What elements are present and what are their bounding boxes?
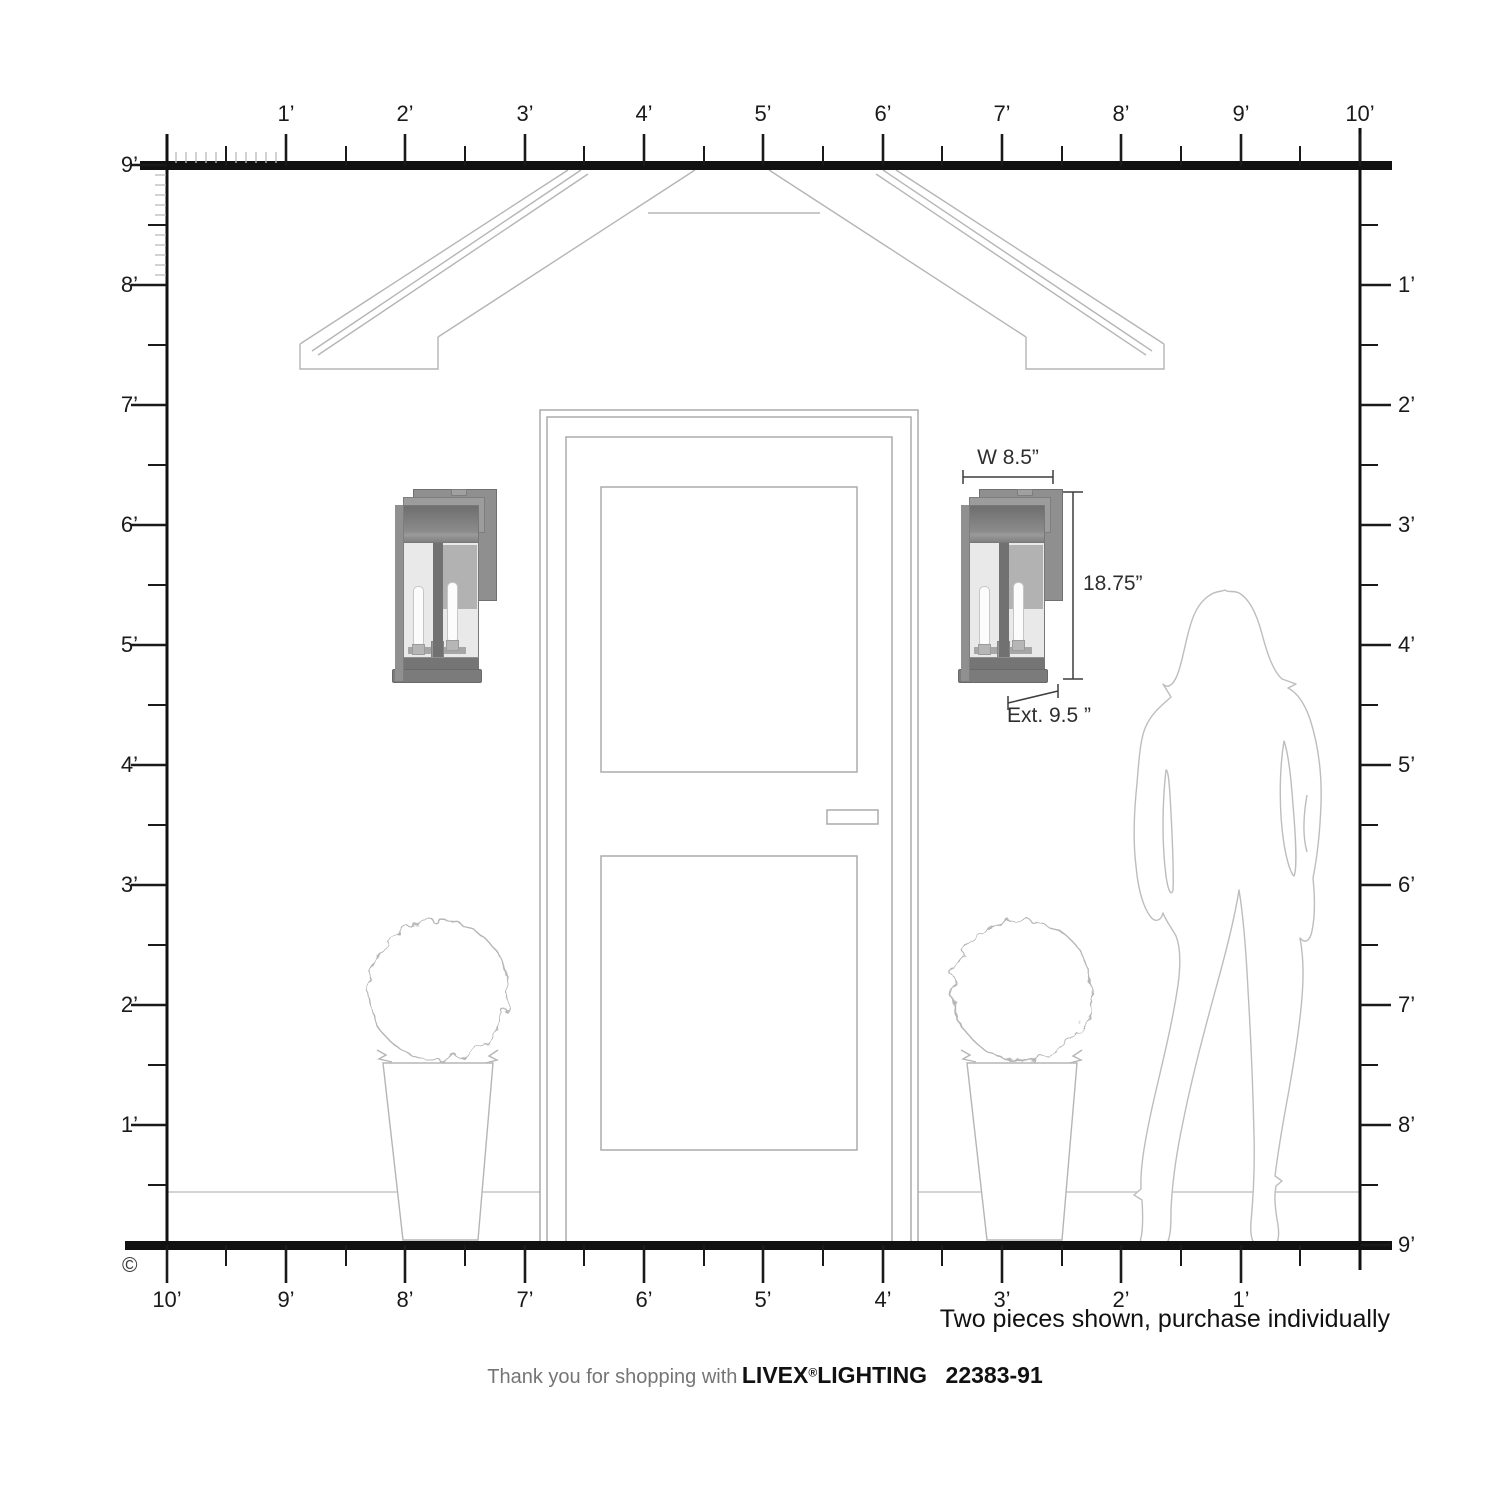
lantern-top-band: [961, 505, 1045, 543]
footer-brand-line: Thank you for shopping with LIVEX®LIGHTI…: [487, 1362, 1042, 1389]
ruler-label: 8’: [70, 273, 138, 297]
ruler-label: 2’: [396, 102, 413, 126]
lantern-glass-shadow: [1005, 545, 1043, 609]
ruler-label: 1’: [1398, 273, 1415, 297]
top-ruler-bar: [140, 161, 1392, 170]
planter: [383, 1063, 493, 1240]
planter: [967, 1063, 1077, 1240]
ruler-label: 4’: [874, 1288, 891, 1312]
woman-silhouette: [1134, 590, 1321, 1245]
ruler-label: 9’: [1398, 1233, 1415, 1257]
bottom-ruler-bar: [125, 1241, 1392, 1250]
shrub: [952, 920, 1092, 1060]
brand-word: LIGHTING: [817, 1362, 927, 1388]
ruler-label: 7’: [993, 102, 1010, 126]
ruler-label: 3’: [70, 873, 138, 897]
ruler-label: 1’: [70, 1113, 138, 1137]
ruler-label: 4’: [1398, 633, 1415, 657]
porch-roof: [300, 170, 1164, 369]
lantern-mullion: [999, 539, 1009, 661]
ruler-label: 8’: [1112, 102, 1129, 126]
ruler-label: 6’: [874, 102, 891, 126]
lantern-socket: [446, 640, 459, 651]
size-guide-diagram: 1’ 2’ 3’ 4’ 5’ 6’ 7’ 8’ 9’ 10’ 9’ 8’ 7’ …: [0, 0, 1500, 1500]
lantern-socket: [978, 644, 991, 655]
brand-name: LIVEX: [742, 1362, 808, 1388]
purchase-note: Two pieces shown, purchase individually: [940, 1305, 1390, 1334]
height-dimension-label: 18.75”: [1083, 573, 1143, 595]
ruler-label: 7’: [516, 1288, 533, 1312]
shrub: [368, 920, 508, 1060]
front-door: [540, 410, 918, 1242]
lantern-mount-tab: [1017, 489, 1033, 496]
ruler-label: 2’: [1398, 393, 1415, 417]
registered-mark: ®: [808, 1366, 817, 1380]
lantern-frame-edge: [961, 505, 970, 681]
wall-lantern-right: [961, 489, 1063, 683]
ruler-label: 8’: [396, 1288, 413, 1312]
ruler-label: 7’: [70, 393, 138, 417]
ruler-label: 5’: [1398, 753, 1415, 777]
lantern-skirt: [392, 669, 482, 683]
lantern-candle: [413, 586, 424, 645]
thanks-text: Thank you for shopping with: [487, 1366, 737, 1388]
ruler-label: 3’: [1398, 513, 1415, 537]
ruler-label: 5’: [754, 1288, 771, 1312]
ruler-label: 4’: [70, 753, 138, 777]
ruler-label: 6’: [635, 1288, 652, 1312]
ruler-label: 9’: [70, 153, 138, 177]
lantern-socket: [412, 644, 425, 655]
ruler-label: 9’: [277, 1288, 294, 1312]
ruler-label: 2’: [70, 993, 138, 1017]
lantern-mount-tab: [451, 489, 467, 496]
ruler-label: 6’: [1398, 873, 1415, 897]
ruler-label: 7’: [1398, 993, 1415, 1017]
ruler-label: 3’: [516, 102, 533, 126]
model-number: 22383-91: [946, 1362, 1043, 1388]
lantern-candle: [1013, 582, 1024, 641]
ruler-label: 10’: [152, 1288, 181, 1312]
copyright-symbol: ©: [122, 1254, 137, 1278]
lantern-candle: [447, 582, 458, 641]
ruler-label: 5’: [754, 102, 771, 126]
ruler-label: 10’: [1345, 102, 1374, 126]
width-dimension-line: [963, 470, 1053, 484]
extension-dimension-label: Ext. 9.5 ”: [1007, 705, 1091, 727]
wall-lantern-left: [395, 489, 497, 683]
ruler-label: 8’: [1398, 1113, 1415, 1137]
width-dimension-label: W 8.5”: [977, 447, 1039, 469]
lantern-glass-shadow: [439, 545, 477, 609]
lantern-candle: [979, 586, 990, 645]
lantern-socket: [1012, 640, 1025, 651]
ruler-label: 9’: [1232, 102, 1249, 126]
height-dimension-line: [1063, 492, 1083, 679]
diagram-canvas: [0, 0, 1500, 1500]
ruler-label: 4’: [635, 102, 652, 126]
lantern-top-band: [395, 505, 479, 543]
ruler-label: 6’: [70, 513, 138, 537]
ruler-label: 5’: [70, 633, 138, 657]
lantern-mullion: [433, 539, 443, 661]
lantern-frame-edge: [395, 505, 404, 681]
lantern-skirt: [958, 669, 1048, 683]
ruler-label: 1’: [277, 102, 294, 126]
